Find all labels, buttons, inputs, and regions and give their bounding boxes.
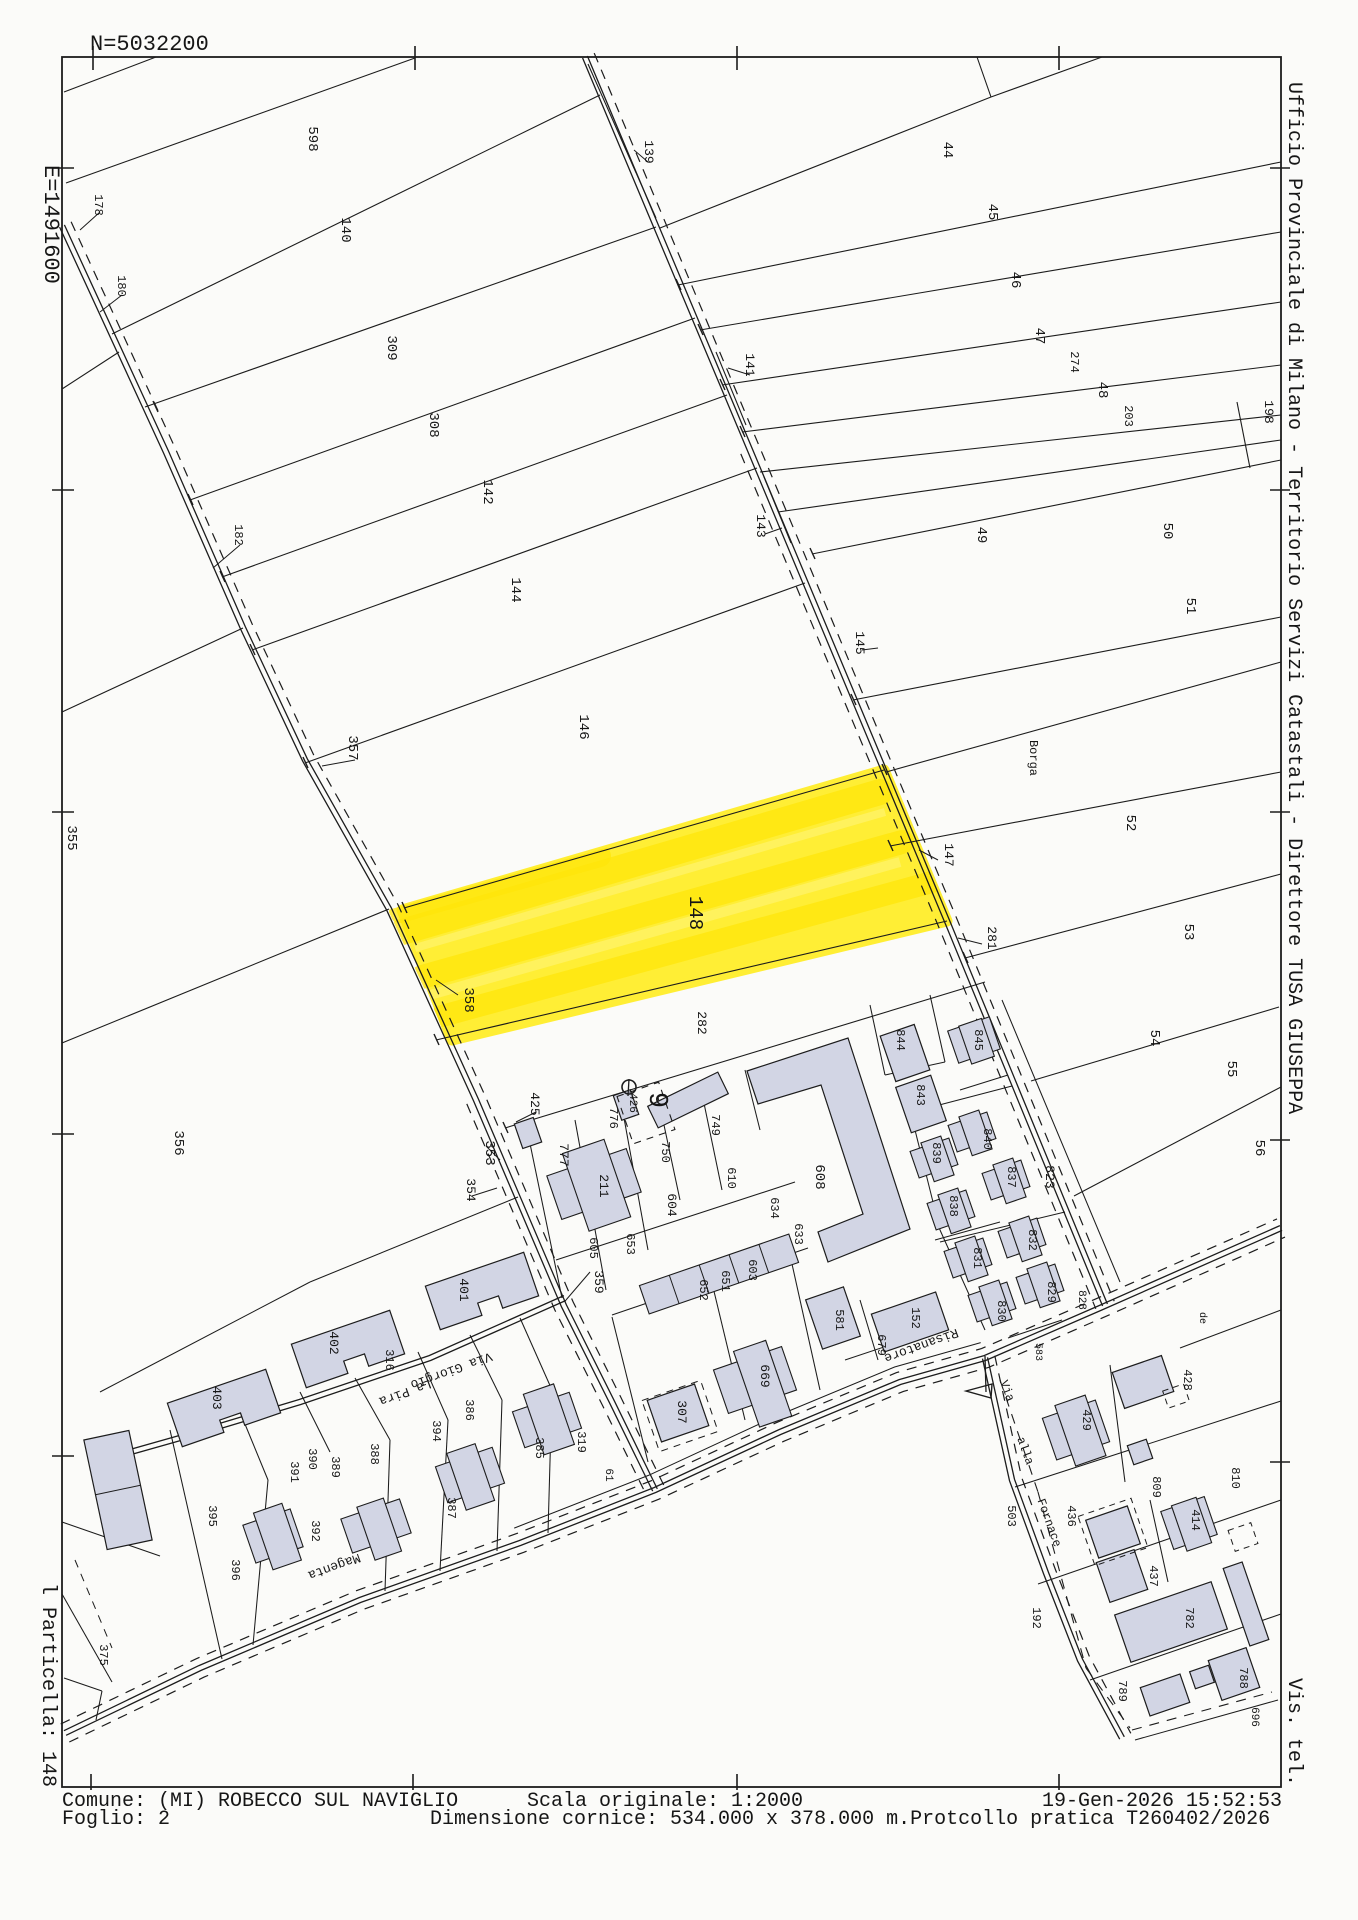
svg-text:387: 387	[444, 1497, 458, 1519]
svg-text:358: 358	[460, 987, 476, 1012]
svg-text:651: 651	[718, 1270, 732, 1292]
svg-text:281: 281	[984, 926, 999, 950]
svg-text:831: 831	[970, 1247, 984, 1269]
svg-text:396: 396	[228, 1559, 242, 1581]
svg-text:830: 830	[994, 1300, 1008, 1322]
svg-text:148: 148	[684, 896, 706, 930]
svg-text:52: 52	[1122, 815, 1138, 832]
svg-text:50: 50	[1159, 523, 1175, 540]
svg-text:633: 633	[791, 1223, 805, 1245]
svg-text:653: 653	[623, 1233, 637, 1255]
svg-text:203: 203	[1121, 405, 1135, 427]
svg-text:l Particella: 148: l Particella: 148	[36, 1583, 59, 1787]
svg-text:354: 354	[463, 1178, 478, 1202]
svg-text:55: 55	[1223, 1061, 1239, 1078]
svg-text:142: 142	[479, 479, 495, 504]
svg-text:429: 429	[1079, 1409, 1093, 1431]
svg-text:789: 789	[1115, 1680, 1129, 1702]
svg-text:583: 583	[1032, 1343, 1043, 1361]
svg-text:de: de	[1196, 1312, 1208, 1324]
svg-text:152: 152	[908, 1307, 922, 1329]
svg-text:N=5032200: N=5032200	[90, 32, 209, 57]
svg-text:837: 837	[1004, 1166, 1018, 1188]
svg-text:839: 839	[929, 1142, 943, 1164]
svg-text:146: 146	[575, 714, 591, 739]
svg-text:319: 319	[574, 1431, 588, 1453]
svg-text:9: 9	[641, 1092, 671, 1108]
svg-text:845: 845	[971, 1029, 985, 1051]
svg-text:669: 669	[757, 1364, 772, 1387]
svg-text:392: 392	[308, 1520, 322, 1542]
svg-text:47: 47	[1031, 328, 1047, 345]
svg-text:503: 503	[1004, 1505, 1018, 1527]
svg-text:828: 828	[1075, 1290, 1087, 1310]
svg-text:598: 598	[304, 126, 320, 151]
svg-text:389: 389	[328, 1456, 342, 1478]
svg-text:581: 581	[832, 1309, 846, 1331]
svg-text:307: 307	[674, 1400, 689, 1423]
svg-text:610: 610	[724, 1167, 738, 1189]
svg-text:414: 414	[1188, 1509, 1202, 1531]
svg-text:605: 605	[586, 1237, 600, 1259]
svg-text:Vis. tel.: Vis. tel.	[1282, 1678, 1305, 1786]
svg-text:355: 355	[63, 825, 79, 850]
svg-text:282: 282	[694, 1011, 709, 1034]
svg-text:192: 192	[1029, 1607, 1043, 1629]
svg-text:788: 788	[1236, 1667, 1250, 1689]
svg-text:782: 782	[1182, 1607, 1196, 1629]
svg-text:385: 385	[532, 1437, 546, 1459]
svg-text:56: 56	[1251, 1140, 1267, 1157]
svg-text:608: 608	[811, 1164, 827, 1189]
svg-text:844: 844	[893, 1029, 907, 1051]
svg-text:402: 402	[326, 1331, 341, 1354]
svg-text:652: 652	[696, 1279, 710, 1301]
svg-text:180: 180	[114, 275, 128, 297]
svg-text:777: 777	[556, 1143, 571, 1166]
svg-text:49: 49	[973, 527, 989, 544]
svg-text:139: 139	[641, 140, 656, 163]
svg-text:391: 391	[287, 1461, 301, 1483]
svg-text:750: 750	[658, 1141, 672, 1163]
svg-text:436: 436	[1064, 1505, 1078, 1527]
svg-text:829: 829	[1044, 1281, 1058, 1303]
svg-text:375: 375	[96, 1644, 110, 1666]
svg-text:Ufficio Provinciale di Milano: Ufficio Provinciale di Milano - Territor…	[1282, 82, 1305, 1114]
svg-text:776: 776	[606, 1107, 620, 1129]
svg-text:634: 634	[767, 1197, 781, 1219]
svg-text:390: 390	[305, 1448, 319, 1470]
svg-text:394: 394	[429, 1420, 443, 1442]
svg-text:198: 198	[1261, 400, 1276, 423]
svg-text:145: 145	[852, 631, 867, 654]
svg-text:357: 357	[344, 735, 360, 760]
svg-text:832: 832	[1025, 1229, 1039, 1251]
svg-text:604: 604	[664, 1193, 679, 1217]
svg-text:749: 749	[708, 1114, 722, 1136]
svg-text:141: 141	[742, 353, 757, 377]
svg-text:426: 426	[626, 1093, 638, 1113]
svg-text:403: 403	[209, 1386, 224, 1409]
svg-text:Foglio: 2: Foglio: 2	[62, 1808, 170, 1831]
svg-text:428: 428	[1180, 1369, 1194, 1391]
svg-text:45: 45	[984, 204, 1000, 221]
svg-text:51: 51	[1182, 598, 1198, 615]
svg-text:309: 309	[383, 335, 399, 360]
svg-text:144: 144	[507, 577, 523, 602]
svg-text:696: 696	[1248, 1707, 1260, 1727]
svg-text:308: 308	[425, 412, 441, 437]
svg-text:840: 840	[980, 1128, 994, 1150]
svg-text:53: 53	[1180, 924, 1196, 941]
svg-text:809: 809	[1149, 1476, 1163, 1498]
svg-text:E=1491600: E=1491600	[38, 165, 63, 284]
svg-text:843: 843	[913, 1084, 927, 1106]
svg-text:603: 603	[745, 1259, 759, 1281]
svg-text:437: 437	[1146, 1565, 1160, 1587]
svg-text:61: 61	[602, 1468, 614, 1482]
svg-text:395: 395	[205, 1505, 219, 1527]
svg-text:143: 143	[753, 514, 768, 537]
svg-text:401: 401	[456, 1278, 471, 1302]
svg-text:356: 356	[170, 1130, 186, 1155]
svg-text:Dimensione cornice: 534.000 x: Dimensione cornice: 534.000 x 378.000 m.…	[430, 1808, 1270, 1831]
svg-text:316: 316	[382, 1349, 396, 1371]
svg-text:178: 178	[91, 194, 105, 216]
svg-text:46: 46	[1007, 272, 1023, 289]
svg-text:140: 140	[337, 217, 353, 242]
svg-text:274: 274	[1067, 351, 1081, 373]
svg-text:388: 388	[367, 1443, 381, 1465]
svg-text:353: 353	[481, 1140, 497, 1165]
svg-text:48: 48	[1094, 382, 1110, 399]
svg-text:44: 44	[939, 142, 955, 159]
svg-text:386: 386	[462, 1399, 476, 1421]
svg-text:Borga: Borga	[1026, 740, 1040, 776]
svg-text:359: 359	[591, 1270, 606, 1293]
svg-text:810: 810	[1228, 1467, 1242, 1489]
svg-text:425: 425	[527, 1092, 542, 1115]
svg-text:182: 182	[231, 524, 245, 546]
svg-text:147: 147	[941, 843, 956, 866]
svg-text:823: 823	[1042, 1165, 1057, 1188]
svg-text:211: 211	[596, 1174, 611, 1198]
svg-text:838: 838	[946, 1195, 960, 1217]
svg-text:54: 54	[1146, 1030, 1162, 1047]
